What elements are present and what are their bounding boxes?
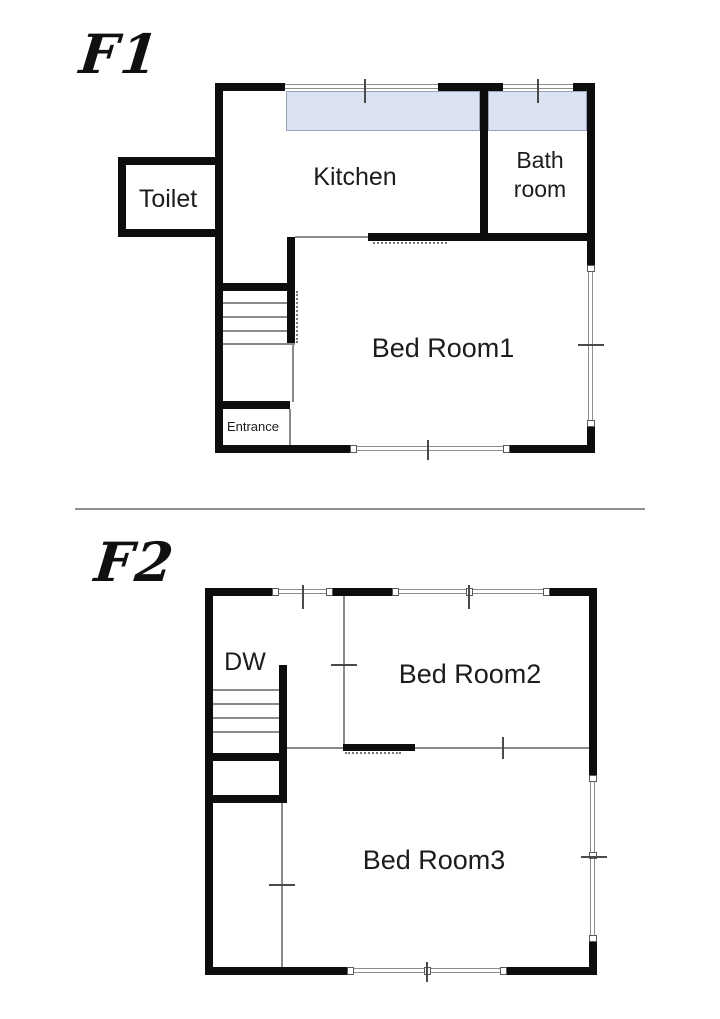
f1-stair-bottom-line [223,343,295,345]
room-label-entrance: Entrance [214,419,292,435]
f1-right-window [587,265,595,427]
window-tick [302,585,304,609]
f1-hall-partition-line [292,345,294,402]
room-label-bedroom2: Bed Room2 [370,658,570,692]
f1-stair-landing-wall [223,283,295,291]
f1-kitchen-counter [286,91,480,131]
floor2-label: F2 [92,530,179,594]
f2-stair-landing-wall [213,753,279,761]
window-tick [426,962,428,982]
f1-entrance-top-wall [223,401,290,409]
f1-kitchen-bedroom-wall [368,233,480,241]
f1-stair-tread [223,330,287,332]
room-label-dw: DW [213,647,277,678]
f1-sliding-door-dotted-line [373,242,447,244]
wall-tick [331,664,357,666]
f1-stair-tread [223,302,287,304]
room-label-kitchen: Kitchen [275,162,435,193]
f2-dw-partition-line [343,596,345,748]
room-label-toilet: Toilet [122,184,214,215]
f2-stair-right-wall [279,665,287,803]
window-tick [537,79,539,103]
f2-stair-tread [213,689,279,691]
wall-tick [269,884,295,886]
f1-outer-wall [215,83,595,453]
f2-stair-tread [213,703,279,705]
room-label-bedroom3: Bed Room3 [334,844,534,878]
f2-top-window-2 [392,588,550,596]
window-tick [468,585,470,609]
floorplan-canvas: F1 Toilet Kitchen Bath room Bed Room1 En [0,0,720,1019]
window-tick [364,79,366,103]
f1-bathroom-partition-wall [480,91,488,241]
f1-bottom-window [350,445,510,453]
room-label-bathroom: Bath room [502,146,578,204]
f1-bathroom-bottom-wall [488,233,587,241]
room-label-bedroom1: Bed Room1 [343,332,543,366]
f2-right-window [589,775,597,942]
f2-stair-tread [213,731,279,733]
f2-closet-wall [213,795,287,803]
f1-top-window-1 [285,83,438,91]
window-tick [578,344,604,346]
floor-divider-line [75,508,645,510]
f2-divider-line-left [287,747,345,749]
f1-stair-tread [223,316,287,318]
f2-divider-dotted-line [345,752,401,754]
floor1-label: F1 [77,22,164,86]
wall-tick [502,737,504,759]
f1-stair-dotted-line [296,291,298,343]
f1-kitchen-doorway-line [295,236,368,238]
f2-stair-tread [213,717,279,719]
window-tick [427,440,429,460]
f2-divider-wall [343,744,415,751]
window-tick [581,856,607,858]
